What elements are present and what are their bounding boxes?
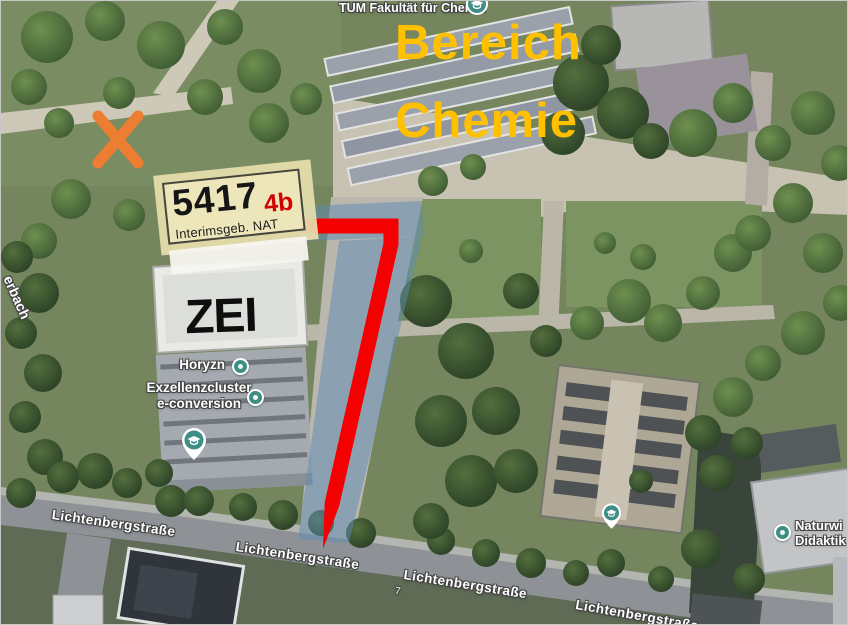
poi-label-cluster-line1: Exzellenzcluster xyxy=(142,380,256,395)
poi-pin-icon[interactable] xyxy=(774,524,791,541)
poi-label-naturwi-line2: Didaktik xyxy=(795,533,846,548)
poi-label-horyzn: Horyzn xyxy=(149,357,225,372)
grad-cap-pin-icon[interactable] xyxy=(602,503,621,529)
poi-label-cluster-line2: e-conversion xyxy=(142,396,256,411)
education-pin-icon[interactable] xyxy=(465,0,489,16)
building-number: 5417 xyxy=(170,174,260,224)
annotated-campus-map: TUM Fakultät für Chemie Bereich Chemie 5… xyxy=(0,0,848,625)
x-marker-icon xyxy=(98,116,138,163)
house-number-label: 7 xyxy=(394,586,401,598)
poi-pin-icon[interactable] xyxy=(247,389,264,406)
building-info-card: 54174b Interimsgeb. NAT xyxy=(153,159,323,275)
building-wing: 4b xyxy=(263,187,295,218)
zei-building-label: ZEI xyxy=(184,288,258,345)
grad-cap-pin-icon[interactable] xyxy=(182,428,206,460)
area-title-line1: Bereich xyxy=(395,19,582,68)
area-title-line2: Chemie xyxy=(395,97,578,146)
poi-pin-icon[interactable] xyxy=(232,358,249,375)
poi-label-naturwi-line1: Naturwi xyxy=(795,518,843,533)
